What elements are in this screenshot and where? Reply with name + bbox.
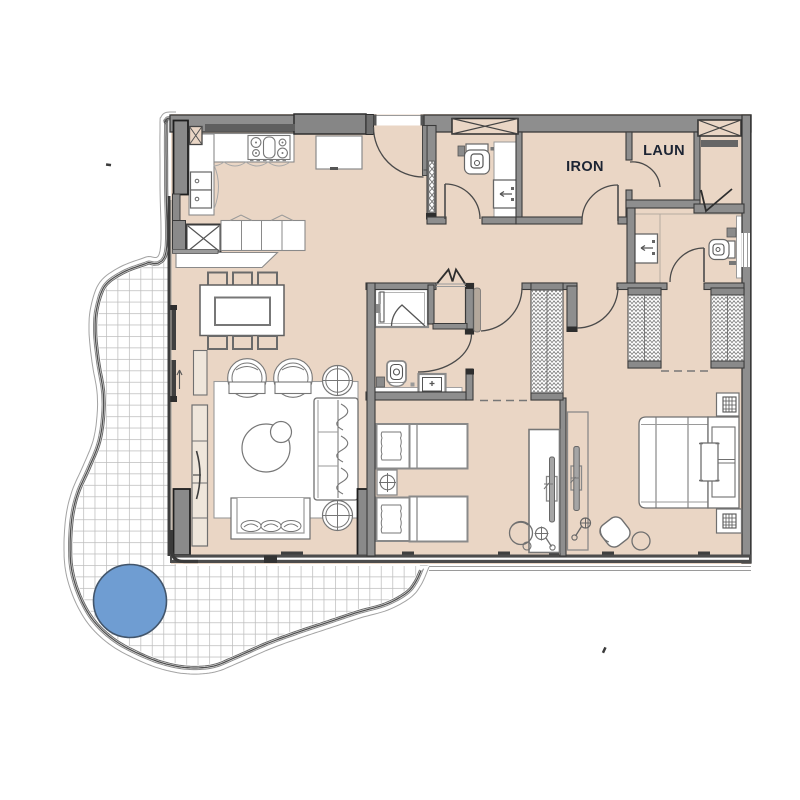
- svg-text:IRON: IRON: [566, 159, 604, 175]
- svg-text:LAUN: LAUN: [643, 143, 685, 159]
